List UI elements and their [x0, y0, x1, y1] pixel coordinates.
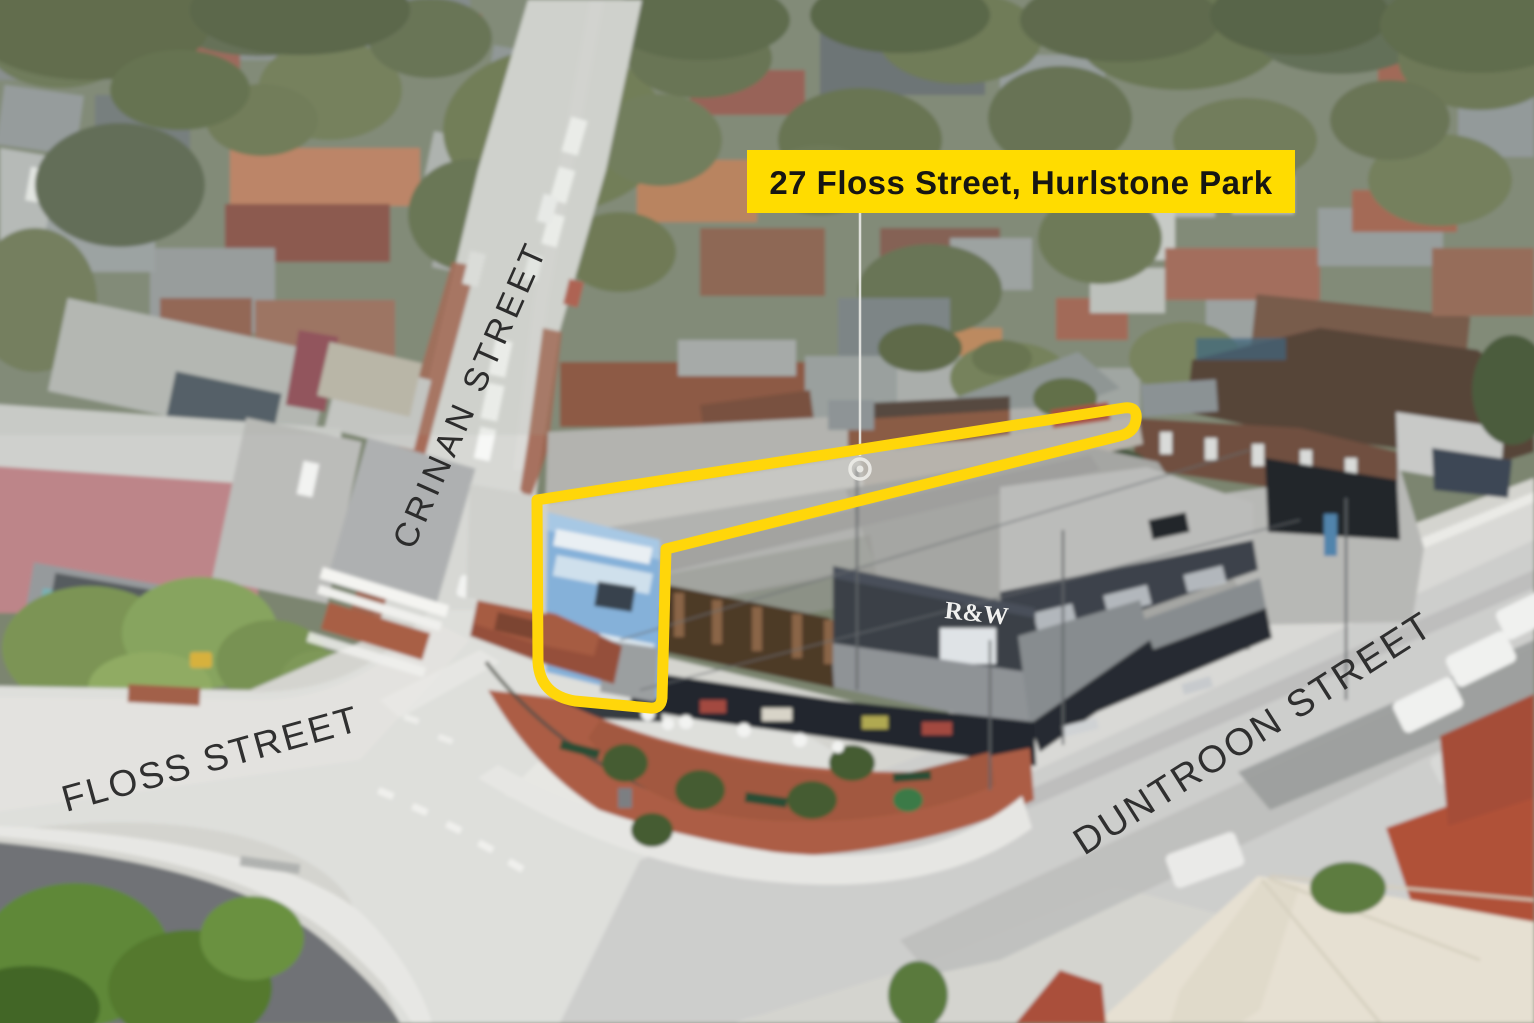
svg-text:27 Floss Street, Hurlstone Par: 27 Floss Street, Hurlstone Park [769, 164, 1272, 201]
